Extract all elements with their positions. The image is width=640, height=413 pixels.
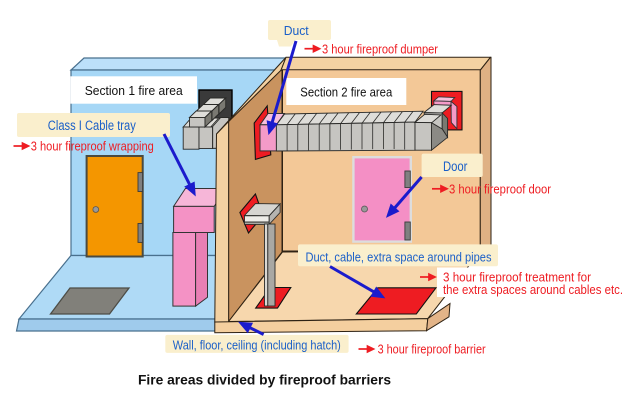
svg-text:Duct: Duct (284, 23, 309, 38)
svg-text:Duct, cable, extra space aroun: Duct, cable, extra space around pipes (306, 249, 492, 264)
svg-text:Section 2 fire area: Section 2 fire area (300, 84, 393, 99)
svg-text:Wall, floor, ceiling (includin: Wall, floor, ceiling (including hatch) (173, 338, 341, 353)
svg-text:the extra spaces around cables: the extra spaces around cables etc. (443, 282, 623, 297)
svg-text:3 hour fireproof door: 3 hour fireproof door (449, 181, 552, 196)
svg-text:3 hour fireproof dumper: 3 hour fireproof dumper (322, 42, 439, 57)
svg-text:Class I Cable tray: Class I Cable tray (48, 118, 136, 133)
svg-text:3 hour fireproof wrapping: 3 hour fireproof wrapping (31, 139, 154, 154)
svg-text:Section 1 fire area: Section 1 fire area (85, 83, 184, 98)
svg-text:3 hour fireproof barrier: 3 hour fireproof barrier (378, 342, 487, 357)
svg-text:Door: Door (443, 159, 468, 174)
svg-text:Fire areas divided by fireproo: Fire areas divided by fireproof barriers (138, 372, 391, 388)
